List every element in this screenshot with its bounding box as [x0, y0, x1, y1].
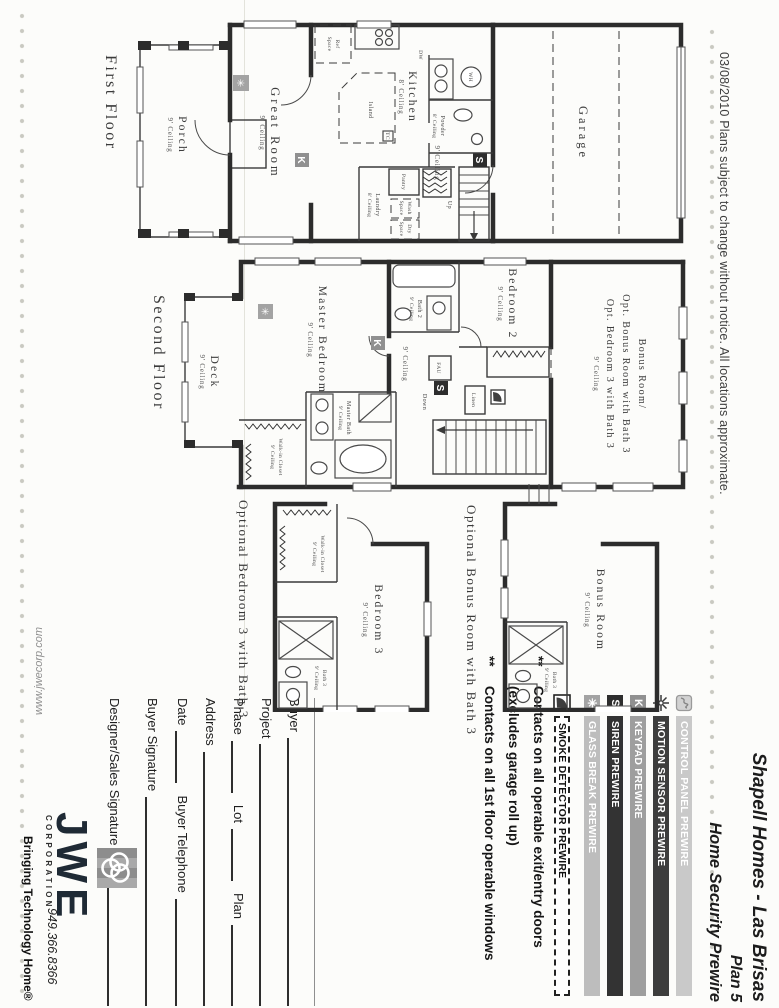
jwe-logo-text: JWE	[49, 812, 93, 922]
glass-break-icon: ✳	[233, 75, 249, 91]
pantry: Pantry	[389, 169, 419, 195]
legend-label: GLASS BREAK PREWIRE	[587, 721, 599, 853]
svg-text:Dry: Dry	[406, 224, 412, 233]
telephone-blank-line	[175, 899, 191, 1006]
master-bath-label: Master Bath	[345, 401, 351, 435]
svg-text:Space: Space	[398, 201, 404, 216]
legend-label: MOTION SENSOR PREWIRE	[656, 721, 668, 866]
opt-bonus-room-label: Bonus Room	[594, 569, 606, 651]
optional-bonus-room-plan: Bonus Room 9' Ceiling Bath 3 9' Ceiling	[487, 482, 667, 712]
svg-text:8' Ceiling: 8' Ceiling	[397, 79, 405, 114]
svg-text:9' Ceiling: 9' Ceiling	[311, 542, 317, 566]
svg-text:9' Ceiling: 9' Ceiling	[408, 297, 414, 321]
linen-cabinet: Linen	[465, 386, 485, 414]
legend-row-motion-sensor: MOTION SENSOR PREWIRE	[653, 694, 670, 996]
form-divider	[314, 698, 315, 1006]
jwe-phone: 949.366.8366	[45, 908, 59, 984]
svg-text:TC: TC	[384, 132, 390, 140]
legend-row-keypad: K KEYPAD PREWIRE	[630, 694, 647, 996]
svg-text:Bath 3: Bath 3	[551, 672, 557, 688]
plan-blank-line	[231, 925, 247, 1006]
ref-space: Ref Space	[315, 25, 351, 63]
laundry-label: Laundry	[374, 193, 380, 216]
form-row-buyer-signature: Buyer Signature	[145, 698, 165, 1006]
second-floor-plan: Bonus Room/ Opt. Bonus Room with Bath 3 …	[126, 252, 691, 497]
scanned-floorplan-page: 03/08/2010 Plans subject to change witho…	[0, 0, 779, 1008]
legend-label: SIREN PREWIRE	[610, 721, 622, 808]
washer-space: Wash Space	[391, 199, 419, 218]
svg-text:Walk-in Closet: Walk-in Closet	[277, 438, 283, 475]
stairs-up: Up	[446, 167, 489, 241]
svg-text:8' Ceiling: 8' Ceiling	[366, 193, 372, 217]
garage-label: Garage	[576, 106, 590, 160]
bath2-label: Bath 2	[416, 300, 422, 318]
jwe-corporation: CORPORATION	[44, 815, 53, 910]
project-blank-line	[259, 744, 275, 1006]
date-blank-line	[175, 731, 191, 783]
svg-text:S: S	[434, 385, 445, 392]
svg-text:S: S	[473, 157, 484, 164]
jwe-tagline: Bringing Technology Home®	[21, 836, 35, 1001]
hall-ceiling-label: 9' Ceiling	[433, 145, 441, 180]
form-row-address: Address	[203, 698, 223, 1006]
svg-text:9' Ceiling: 9' Ceiling	[166, 117, 174, 152]
svg-text:9' Ceiling: 9' Ceiling	[361, 602, 369, 637]
svg-text:Space: Space	[398, 222, 404, 237]
address-blank-line	[203, 752, 219, 1006]
svg-text:9' Ceiling: 9' Ceiling	[337, 406, 343, 430]
optional-bonus-caption: Optional Bonus Room with Bath 3	[463, 505, 479, 736]
buyer-blank-line	[287, 738, 303, 1006]
form-row-phase-lot-plan: Phase Lot Plan	[231, 698, 251, 1006]
page-subtitle: Home Security Prewire	[705, 0, 724, 1002]
note-text: Contacts on all operable exit/entry door…	[530, 686, 546, 948]
svg-text:Walk-in Closet: Walk-in Closet	[319, 535, 325, 572]
up-label: Up	[446, 201, 452, 209]
down-label: Down	[421, 394, 427, 410]
buyer-signature-line	[145, 797, 161, 1006]
svg-text:Space: Space	[326, 37, 332, 52]
bedroom2-closet	[487, 347, 549, 377]
master-closet: Walk-in Closet 9' Ceiling	[245, 424, 301, 480]
svg-text:Opt. Bedroom 3 with Bath 3: Opt. Bedroom 3 with Bath 3	[604, 299, 615, 449]
legend-row-smoke-detector: SMOKE DETECTOR PREWIRE	[554, 694, 571, 996]
svg-text:9' Ceiling: 9' Ceiling	[583, 592, 591, 627]
security-legend: CONTROL PANEL PREWIRE MOTION SENSOR PREW…	[548, 694, 693, 996]
first-floor-label: First Floor	[101, 55, 119, 151]
svg-text:9' Ceiling: 9' Ceiling	[543, 668, 549, 692]
master-bedroom-label: Master Bedroom	[316, 286, 328, 394]
kitchen-label: Kitchen	[406, 71, 418, 123]
smoke-detector-icon	[491, 390, 505, 404]
note-text: Contacts on all 1st floor operable windo…	[481, 686, 497, 961]
svg-text:9' Ceiling: 9' Ceiling	[496, 286, 504, 321]
svg-text:9' Ceiling: 9' Ceiling	[306, 322, 314, 357]
first-floor-plan: Garage Up S Powder 8' Ceiling WH	[86, 15, 691, 250]
svg-text:9' Ceiling: 9' Ceiling	[258, 115, 266, 150]
hall-ceiling-label: 9' Ceiling	[401, 346, 409, 381]
svg-text:K: K	[295, 156, 306, 164]
svg-text:9' Ceiling: 9' Ceiling	[592, 356, 600, 391]
form-row-date-telephone: Date Buyer Telephone	[175, 698, 195, 1006]
svg-text:Opt. Bonus Room with Bath 3: Opt. Bonus Room with Bath 3	[620, 294, 631, 453]
svg-text:Wash: Wash	[406, 201, 412, 214]
keypad-icon: K	[371, 336, 385, 350]
opt-bedroom3-bath3: Bath 3 9' Ceiling	[275, 617, 337, 710]
deck: Deck 9' Ceiling	[182, 293, 243, 448]
form-row-project: Project	[259, 698, 279, 1006]
dryer-space: Dry Space	[391, 220, 419, 239]
svg-text:✳: ✳	[259, 307, 270, 315]
svg-text:Deck: Deck	[208, 355, 220, 388]
porch-label: Porch	[176, 116, 188, 154]
svg-text:Bath 3: Bath 3	[321, 670, 327, 686]
opt-bedroom3-label: Bedroom 3	[372, 584, 384, 655]
plan-number: Plan 5	[726, 0, 744, 1002]
bedroom2-label: Bedroom 2	[506, 268, 518, 339]
jwe-website: www.jwecorp.com	[33, 596, 45, 746]
phase-blank-line	[231, 741, 247, 793]
fau-closet: FAU	[429, 356, 451, 380]
svg-text:9' Ceiling: 9' Ceiling	[269, 445, 275, 469]
svg-text:Island: Island	[367, 101, 373, 118]
optional-bedroom3-plan: Bedroom 3 9' Ceiling Walk-in Closet 9' C…	[257, 482, 437, 712]
siren-icon: S	[434, 381, 448, 395]
page-title: Shapell Homes - Las Brisas	[747, 0, 769, 1002]
landscape-sheet: 03/08/2010 Plans subject to change witho…	[0, 0, 779, 1008]
stairs-down: Down	[421, 394, 546, 474]
svg-text:Ref: Ref	[334, 40, 341, 49]
dw-label: DW	[417, 50, 423, 60]
opt-bedroom3-closet: Walk-in Closet 9' Ceiling	[275, 504, 337, 582]
keypad-icon: K	[295, 153, 309, 167]
legend-label: SMOKE DETECTOR PREWIRE	[557, 723, 569, 878]
glass-break-icon: ✳	[258, 304, 273, 319]
legend-label: KEYPAD PREWIRE	[633, 721, 645, 819]
jwe-logo-mark	[90, 846, 139, 890]
legend-row-glass-break: ✳ GLASS BREAK PREWIRE	[584, 694, 601, 996]
svg-text:Linen: Linen	[470, 393, 476, 407]
svg-text:K: K	[371, 339, 382, 347]
svg-text:✳: ✳	[234, 79, 245, 87]
legend-row-siren: S SIREN PREWIRE	[607, 694, 624, 996]
lot-blank-line	[231, 829, 247, 881]
powder-label: Powder	[439, 116, 445, 137]
form-row-buyer: Buyer	[287, 698, 307, 1006]
bonus-room-label: Bonus Room/	[636, 339, 647, 410]
svg-text:9' Ceiling: 9' Ceiling	[198, 354, 206, 389]
second-floor-label: Second Floor	[149, 295, 167, 411]
opt-bonus-bath3: Bath 3 9' Ceiling	[505, 622, 567, 710]
svg-text:Pantry: Pantry	[400, 174, 406, 190]
svg-text:FAU: FAU	[435, 362, 441, 374]
optional-bedroom3-caption: Optional Bedroom 3 with Bath 3	[235, 500, 251, 719]
title-block: Shapell Homes - Las Brisas Plan 5 Home S…	[705, 0, 769, 1002]
wh-label: WH	[467, 72, 473, 82]
great-room-label: Great Room	[268, 87, 282, 178]
siren-icon: S	[473, 153, 487, 167]
legend-label: CONTROL PANEL PREWIRE	[679, 721, 691, 866]
svg-text:9' Ceiling: 9' Ceiling	[313, 666, 319, 690]
control-panel-icon	[676, 694, 694, 712]
svg-text:8' Ceiling: 8' Ceiling	[431, 114, 437, 138]
kitchen-island: Island TC	[339, 73, 395, 143]
legend-row-control-panel: CONTROL PANEL PREWIRE	[676, 694, 693, 996]
